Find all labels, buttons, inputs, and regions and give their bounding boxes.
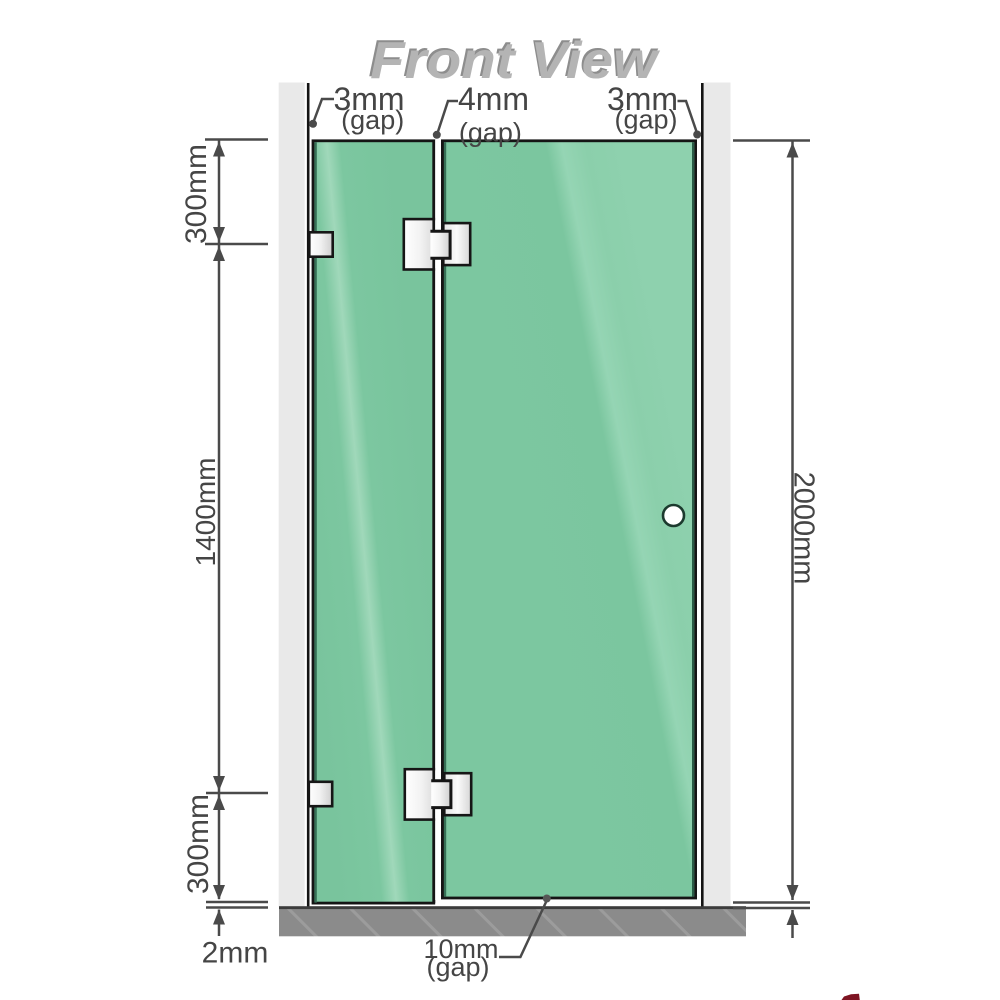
- svg-text:300mm: 300mm: [182, 794, 215, 894]
- svg-text:(gap): (gap): [459, 118, 522, 148]
- svg-text:(gap): (gap): [426, 952, 489, 982]
- svg-text:(gap): (gap): [341, 105, 404, 135]
- svg-text:2mm: 2mm: [202, 937, 269, 970]
- svg-text:1400mm: 1400mm: [190, 458, 221, 567]
- svg-text:4mm: 4mm: [458, 81, 529, 117]
- svg-text:2000mm: 2000mm: [788, 472, 820, 585]
- svg-text:300mm: 300mm: [180, 144, 213, 244]
- svg-text:(gap): (gap): [614, 105, 677, 135]
